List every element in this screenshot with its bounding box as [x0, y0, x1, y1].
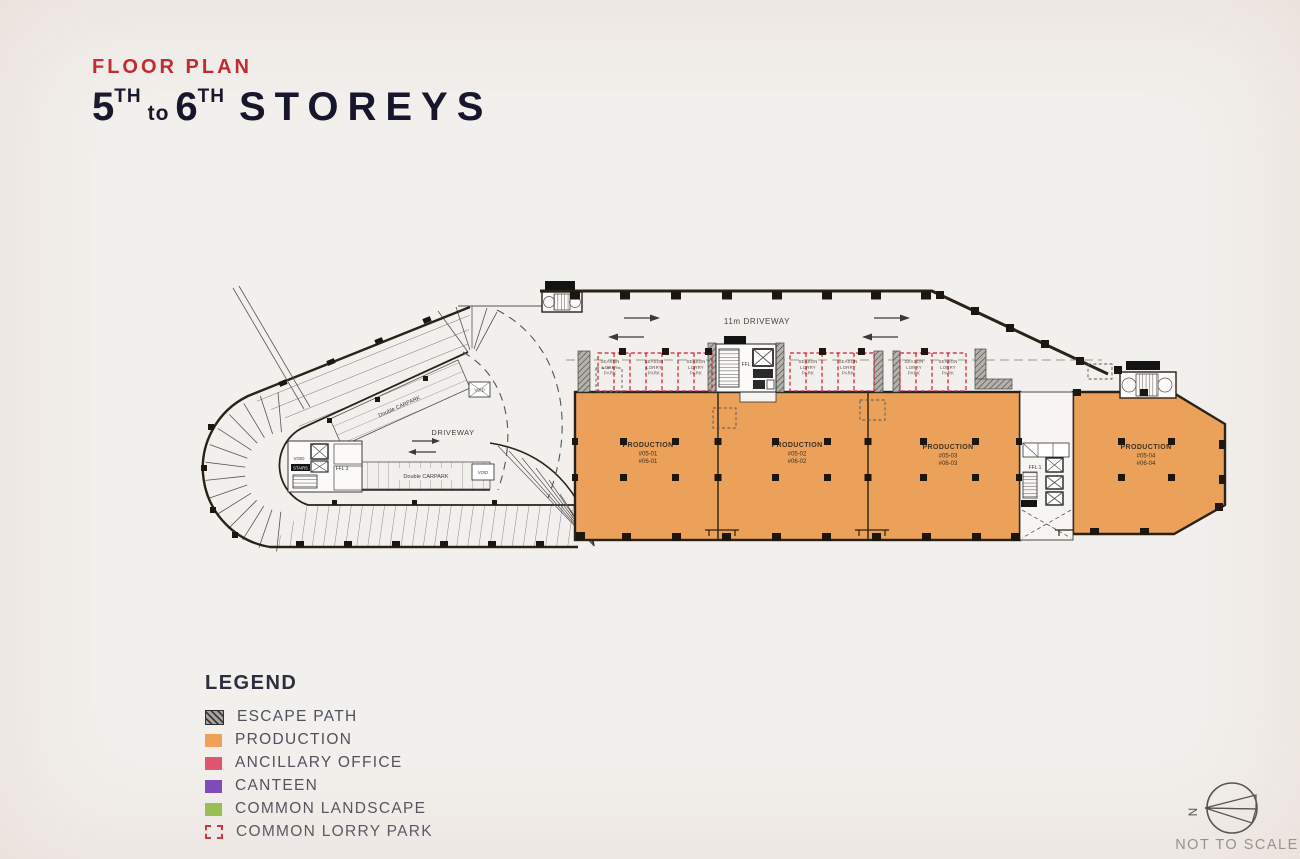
central-core-ffl1: FFL 1 — [1020, 392, 1073, 540]
stair-treads — [719, 349, 739, 387]
canteen-swatch — [205, 780, 222, 793]
svg-text:#06-02: #06-02 — [788, 459, 807, 465]
lobby-badge — [1021, 500, 1037, 507]
north-arrow — [1205, 795, 1256, 809]
svg-text:VOID: VOID — [474, 388, 484, 393]
svg-text:PRODUCTION: PRODUCTION — [922, 444, 973, 451]
common-landscape-swatch — [205, 803, 222, 816]
legend-item-escape-path: ESCAPE PATH — [205, 710, 433, 724]
common-lorry-park-swatch — [205, 825, 223, 839]
not-to-scale-note: NOT TO SCALE — [1175, 837, 1299, 853]
floor-plan-page: FLOOR PLAN 5THto6THSTOREYS — [0, 0, 1300, 859]
north-arrow — [1205, 808, 1256, 823]
svg-text:PRODUCTION: PRODUCTION — [1120, 444, 1171, 451]
legend-item-common-landscape: COMMON LANDSCAPE — [205, 802, 433, 816]
svg-text:#05-01: #05-01 — [639, 452, 658, 458]
svg-text:#06-01: #06-01 — [639, 459, 658, 465]
central-core-ffl2: FFL 2 — [716, 336, 776, 402]
ramp-lower-band — [270, 505, 578, 547]
stair-treads — [293, 475, 317, 488]
compass: N NOT TO SCALE — [1175, 783, 1299, 853]
svg-text:#06-04: #06-04 — [1137, 461, 1156, 467]
double-carpark-label: Double CARPARK — [403, 474, 448, 480]
floor-plan-drawing: SEASON LORRY PARK — [0, 0, 1300, 859]
north-letter: N — [1186, 808, 1200, 817]
production-swatch — [205, 734, 222, 747]
ffl1-label: FFL 1 — [1029, 465, 1042, 471]
loop-core: VOID STAIRS FFL 3 — [288, 441, 362, 492]
legend-item-production: PRODUCTION — [205, 733, 433, 747]
stairs-badge-label: STAIRS — [293, 465, 308, 470]
escape-path-swatch — [205, 710, 224, 725]
legend-title: LEGEND — [205, 672, 433, 695]
legend: LEGEND ESCAPE PATH PRODUCTION ANCILLARY … — [205, 672, 433, 848]
void-box: VOID — [472, 464, 494, 480]
escape-stair-badge — [1126, 361, 1160, 370]
ancillary-office-swatch — [205, 757, 222, 770]
svg-text:#06-03: #06-03 — [939, 461, 958, 467]
block-top-boundary — [540, 291, 1108, 374]
void-label: VOID — [293, 456, 305, 461]
svg-text:#05-03: #05-03 — [939, 454, 958, 460]
stair-badge — [724, 336, 746, 344]
svg-text:VOID: VOID — [478, 470, 488, 475]
loop-driveway-label: DRIVEWAY — [431, 428, 474, 437]
stair-badge — [545, 281, 575, 290]
svg-text:PRODUCTION: PRODUCTION — [622, 442, 673, 449]
svg-text:#05-02: #05-02 — [788, 452, 807, 458]
legend-item-common-lorry-park: COMMON LORRY PARK — [205, 825, 433, 839]
stair-treads — [1023, 472, 1037, 498]
svg-text:#05-04: #05-04 — [1137, 454, 1156, 460]
loop-driveway-arrows — [408, 438, 440, 455]
carpark-loop-ramp: Double CARPARK Double CARPARK VOID STAIR… — [201, 286, 594, 552]
main-driveway-label: 11m DRIVEWAY — [724, 317, 790, 326]
ffl3-label: FFL 3 — [336, 466, 349, 472]
legend-item-canteen: CANTEEN — [205, 779, 433, 793]
ramp-cap-ticks — [205, 392, 281, 551]
void-box: VOID — [469, 382, 490, 397]
main-building-block: 11m DRIVEWAY — [540, 281, 1226, 541]
legend-item-ancillary-office: ANCILLARY OFFICE — [205, 756, 433, 770]
svg-text:PRODUCTION: PRODUCTION — [771, 442, 822, 449]
